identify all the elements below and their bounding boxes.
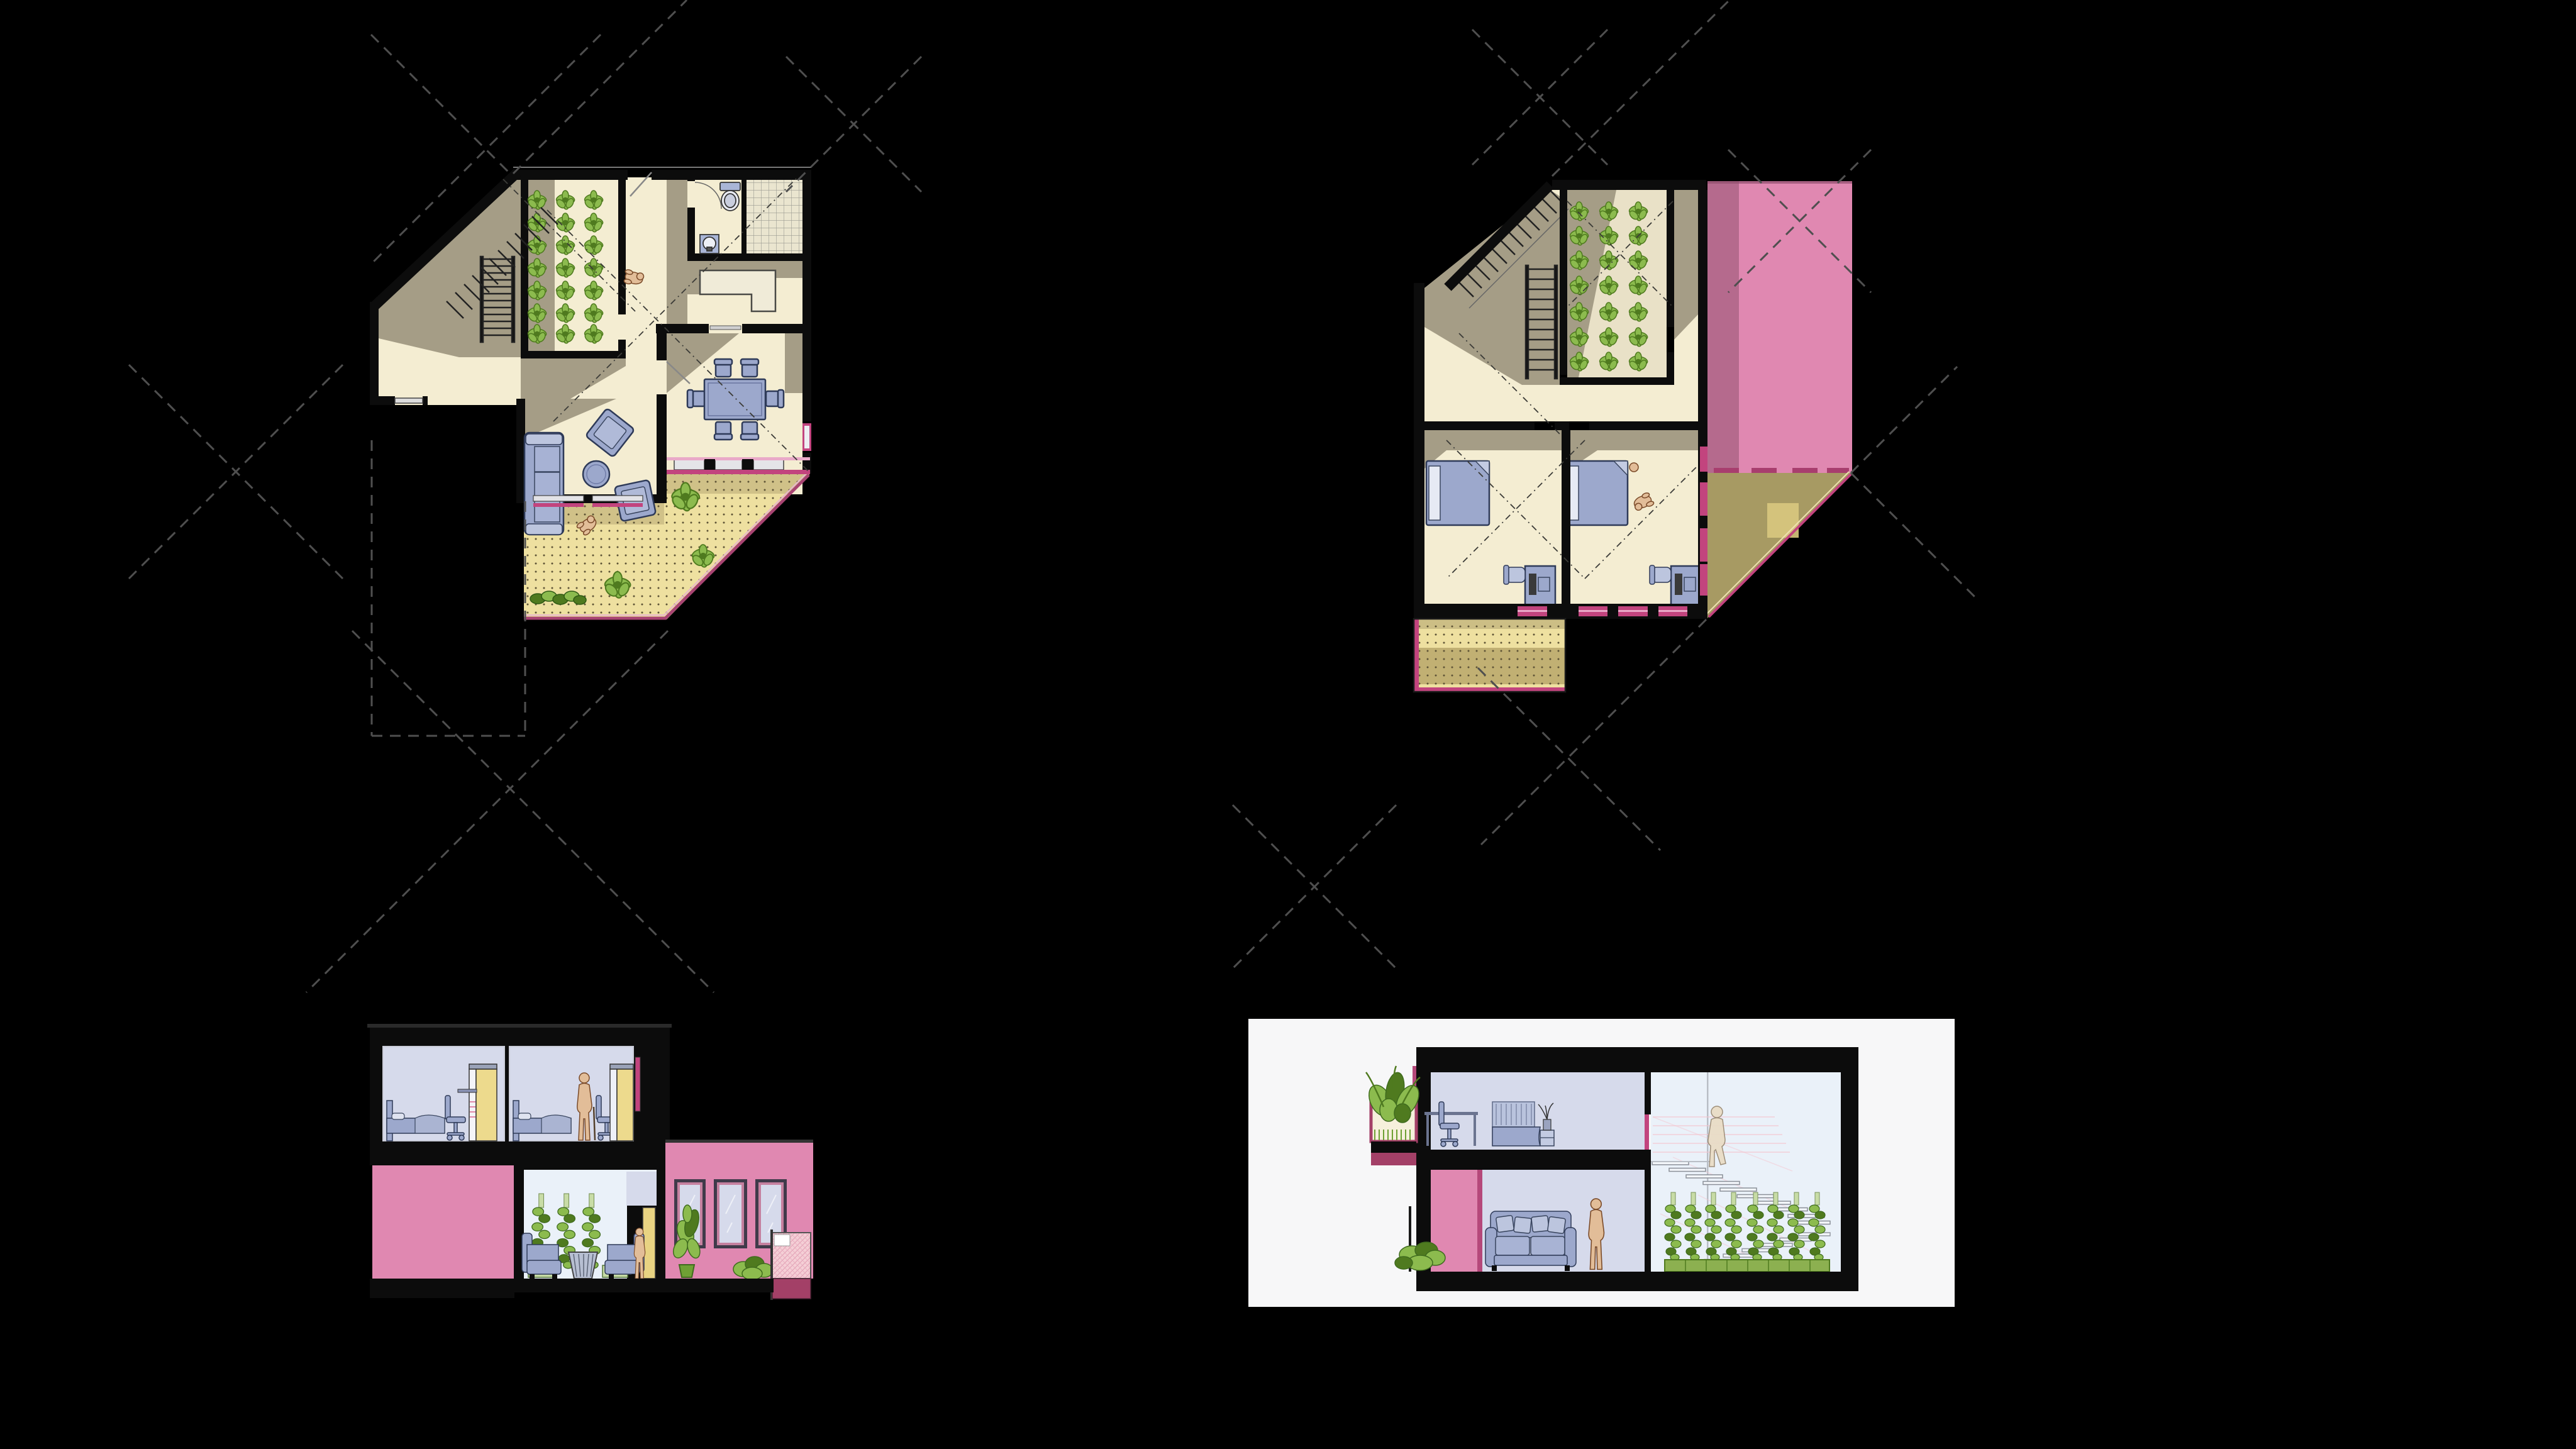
pink-roof-block (1707, 181, 1852, 473)
side-window (635, 1057, 640, 1111)
street-wing (665, 1140, 813, 1300)
door (643, 1207, 655, 1279)
washbasin-icon (700, 235, 719, 253)
planter-row (1665, 1260, 1829, 1272)
dining-table (704, 379, 765, 419)
winter-garden (522, 1165, 657, 1279)
garden-void (1567, 190, 1667, 377)
small-figure (1629, 463, 1638, 472)
toilet-icon (720, 182, 740, 211)
sofa (525, 433, 563, 535)
bed (1426, 461, 1489, 525)
ground-floor-plan (346, 145, 880, 742)
wardrobe (476, 1069, 497, 1141)
roof (1416, 1047, 1858, 1072)
shower (747, 180, 802, 253)
ground-slab (1416, 1272, 1858, 1291)
first-floor-plan (1352, 126, 1918, 755)
window-sill (667, 470, 810, 474)
lower-roof (1707, 472, 1852, 618)
bed (1492, 1102, 1540, 1146)
wardrobe (617, 1069, 633, 1141)
window (395, 398, 423, 403)
facade-window (714, 1179, 747, 1248)
sofa (1485, 1211, 1576, 1271)
floor-slab (1416, 1150, 1651, 1170)
vase (1543, 1119, 1551, 1130)
terrace (1414, 619, 1565, 692)
bed (1565, 461, 1628, 525)
ground-slab (370, 1279, 774, 1292)
pedestal-planter (569, 1252, 597, 1279)
cross-section (352, 1006, 830, 1321)
long-section (1233, 1006, 1975, 1321)
gate-panel (770, 1230, 811, 1300)
presentation-board (0, 0, 2576, 1449)
garden-bed (527, 191, 604, 344)
pink-block (372, 1165, 514, 1296)
